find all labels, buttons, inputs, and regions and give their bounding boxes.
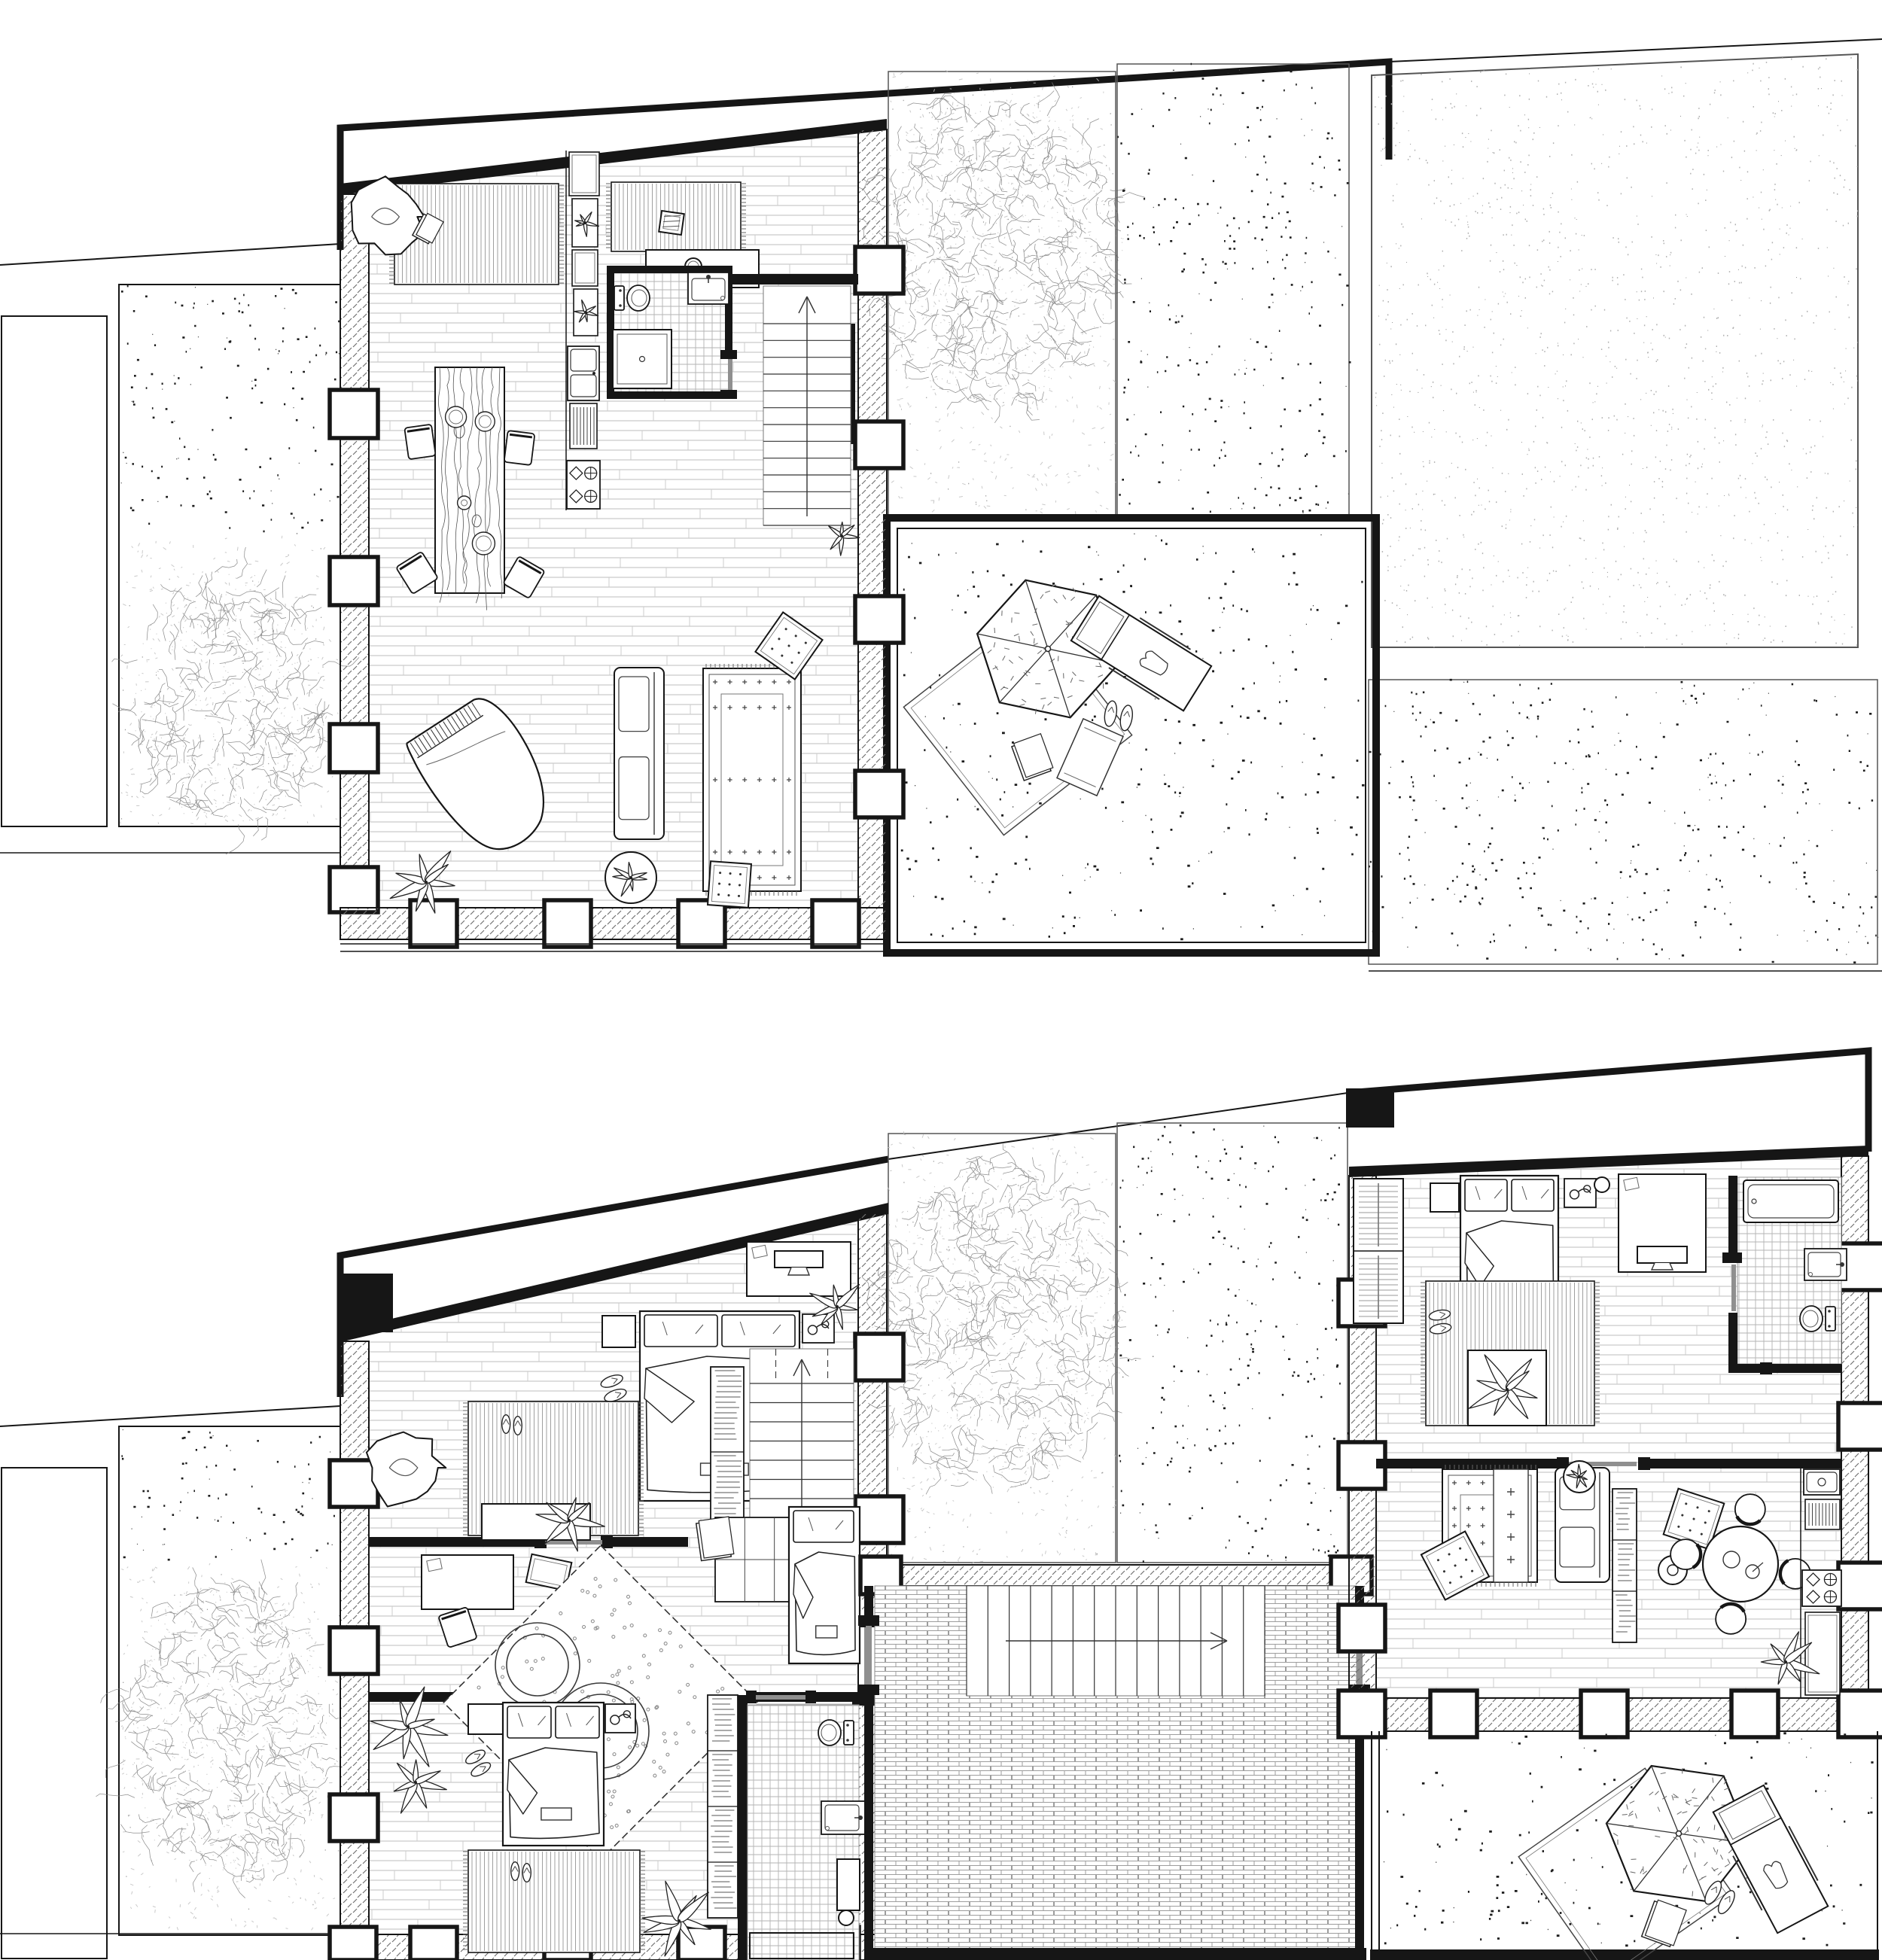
pilaster — [855, 771, 903, 817]
terrace-bottom-wall — [1370, 1949, 1879, 1960]
sofa-upper — [614, 668, 664, 839]
kitchen-sink — [1804, 1469, 1840, 1495]
bookshelf-divider — [1612, 1489, 1637, 1642]
pilaster — [1581, 1691, 1628, 1737]
partition-B3 — [738, 1695, 748, 1960]
lawn-upper-left — [120, 536, 339, 825]
yard-border-lower-left — [119, 1426, 340, 1935]
gravel-strip-upper-center — [1117, 64, 1351, 517]
door-jamb — [1760, 1362, 1772, 1374]
wall-upper-left — [340, 194, 369, 908]
neighbor-parcel-upper — [2, 316, 107, 826]
site-boundary-lower-left — [0, 1406, 340, 1426]
partition-Cb — [1649, 1459, 1841, 1468]
bath-wall — [1728, 1364, 1841, 1373]
sink-upper — [688, 272, 729, 304]
desk-lamp — [1594, 1177, 1609, 1192]
kids-single-bed — [789, 1507, 860, 1663]
pilaster — [330, 1460, 378, 1507]
kitchen-herb-box — [572, 199, 598, 247]
bed-lower-left — [503, 1703, 604, 1846]
kitchen-stove — [1802, 1570, 1841, 1606]
lawn-lower-left — [121, 1563, 340, 1931]
court-wall-left2 — [864, 1692, 873, 1960]
pouf — [708, 861, 751, 908]
wall-lamp — [1564, 1179, 1596, 1207]
pilaster — [544, 900, 591, 947]
court-bottom-wall — [869, 1948, 1366, 1960]
toilet-upper — [614, 285, 650, 311]
desk-lower-right — [1619, 1174, 1706, 1272]
kitchen-stove — [567, 461, 600, 509]
bookshelf — [711, 1367, 744, 1537]
door-jamb — [805, 1691, 816, 1703]
door-jamb — [720, 350, 737, 359]
pilaster — [855, 1496, 903, 1543]
gravel-band-right — [1369, 680, 1878, 964]
nightstand — [602, 1316, 635, 1347]
floor-plan-drawing — [0, 0, 1882, 1960]
towel-upper — [1057, 719, 1123, 796]
pilaster — [855, 596, 903, 643]
door-leaf — [1731, 1265, 1736, 1311]
nightstand — [1430, 1183, 1459, 1212]
site-boundary-upper-right — [1389, 39, 1882, 62]
pilaster — [1430, 1691, 1477, 1737]
dining-table-wood — [435, 367, 504, 610]
book-lower-terrace — [1642, 1899, 1686, 1948]
kid-desk — [422, 1555, 513, 1609]
sink-lower-right — [1804, 1249, 1847, 1280]
dining-chair — [404, 425, 435, 460]
door-leaf — [866, 1626, 872, 1685]
bath-shelf — [837, 1859, 860, 1910]
dressing-stool — [659, 211, 684, 235]
pilaster — [330, 724, 378, 772]
dining-chair — [504, 431, 535, 465]
wardrobe-rail — [1354, 1179, 1403, 1323]
pilaster — [678, 900, 725, 947]
door-jamb — [720, 390, 737, 399]
door-jamb — [601, 1535, 613, 1548]
neighbor-parcel-lower — [2, 1468, 107, 1958]
bathtub-lower-right — [1743, 1180, 1838, 1222]
rug-runner — [1494, 1469, 1528, 1582]
book-upper-terrace — [1011, 734, 1054, 781]
kitchen-herb-box — [574, 289, 598, 336]
bath-wall — [1728, 1313, 1737, 1368]
pilaster — [330, 1927, 376, 1960]
door-leaf — [756, 1695, 805, 1700]
ornate-rug-upper — [703, 664, 801, 896]
kitchen-cabinet — [1805, 1612, 1840, 1695]
wardrobe-shelves — [708, 1695, 738, 1918]
kitchen-dishrack — [570, 403, 597, 449]
door-jamb — [746, 1691, 757, 1703]
garden-upper-right — [1372, 54, 1859, 647]
toilet-lower-left — [818, 1720, 854, 1745]
pilaster — [410, 1927, 457, 1960]
sink-lower-left — [821, 1801, 865, 1834]
roof-outline-lower-right-building — [1348, 1051, 1868, 1152]
site-line-lower-mid — [888, 1093, 1348, 1159]
court-top-wall — [869, 1565, 1366, 1586]
door-jamb — [858, 1615, 879, 1626]
nightstand — [468, 1704, 503, 1734]
door-jamb — [1722, 1252, 1742, 1263]
pilaster — [330, 1794, 378, 1841]
bath-wall — [1728, 1176, 1737, 1260]
kitchen-double-sink — [568, 346, 599, 400]
wall-lamp — [605, 1704, 635, 1733]
pilaster — [855, 422, 903, 468]
partition-C — [1376, 1459, 1566, 1468]
terrace-upper-gravel — [901, 534, 1365, 939]
toilet-lower-right — [1800, 1306, 1835, 1332]
gravel-court-upper-left — [121, 286, 340, 534]
floor-plan-sheet — [0, 0, 1882, 1960]
tree-upper-left — [112, 547, 360, 854]
pilaster — [1338, 1691, 1385, 1737]
pilaster — [1838, 1403, 1882, 1450]
hall-wall — [732, 274, 858, 285]
pilaster — [330, 390, 378, 438]
rug-striped — [463, 1850, 645, 1952]
pilaster — [330, 1627, 378, 1674]
kitchen-dishrack — [1805, 1499, 1840, 1529]
pilaster — [812, 900, 859, 947]
pilaster — [855, 247, 903, 294]
tree-lower-left — [96, 1560, 343, 1898]
door-jamb — [858, 1685, 879, 1695]
bath-stool — [839, 1910, 854, 1925]
stairs-upper — [763, 286, 851, 525]
pilaster — [330, 557, 378, 605]
shower-upper — [613, 330, 671, 388]
corner-block — [340, 1274, 393, 1332]
potted-plant-round — [1564, 1461, 1595, 1493]
site-boundary-upper-left — [0, 244, 340, 265]
tree-lower-center — [862, 1143, 1141, 1494]
gravel-court-lower-left — [121, 1430, 335, 1560]
courtyard-stairs — [967, 1586, 1265, 1696]
door-leaf — [728, 359, 732, 392]
kitchen-cabinet — [572, 250, 598, 286]
pilaster — [1838, 1691, 1882, 1737]
bath-wall — [607, 391, 732, 399]
door-jamb — [1638, 1457, 1650, 1470]
paper — [696, 1517, 734, 1561]
potted-plant-round — [605, 852, 656, 903]
pilaster — [855, 1334, 903, 1380]
pilaster — [1731, 1691, 1778, 1737]
partition-B1b — [611, 1537, 688, 1547]
pilaster — [1838, 1563, 1882, 1609]
pilaster — [1338, 1605, 1385, 1651]
pilaster-corner — [330, 867, 378, 912]
corner-block — [1346, 1088, 1394, 1128]
gravel-strip-lower-center — [1117, 1123, 1350, 1563]
kitchen-cabinet — [569, 152, 599, 196]
